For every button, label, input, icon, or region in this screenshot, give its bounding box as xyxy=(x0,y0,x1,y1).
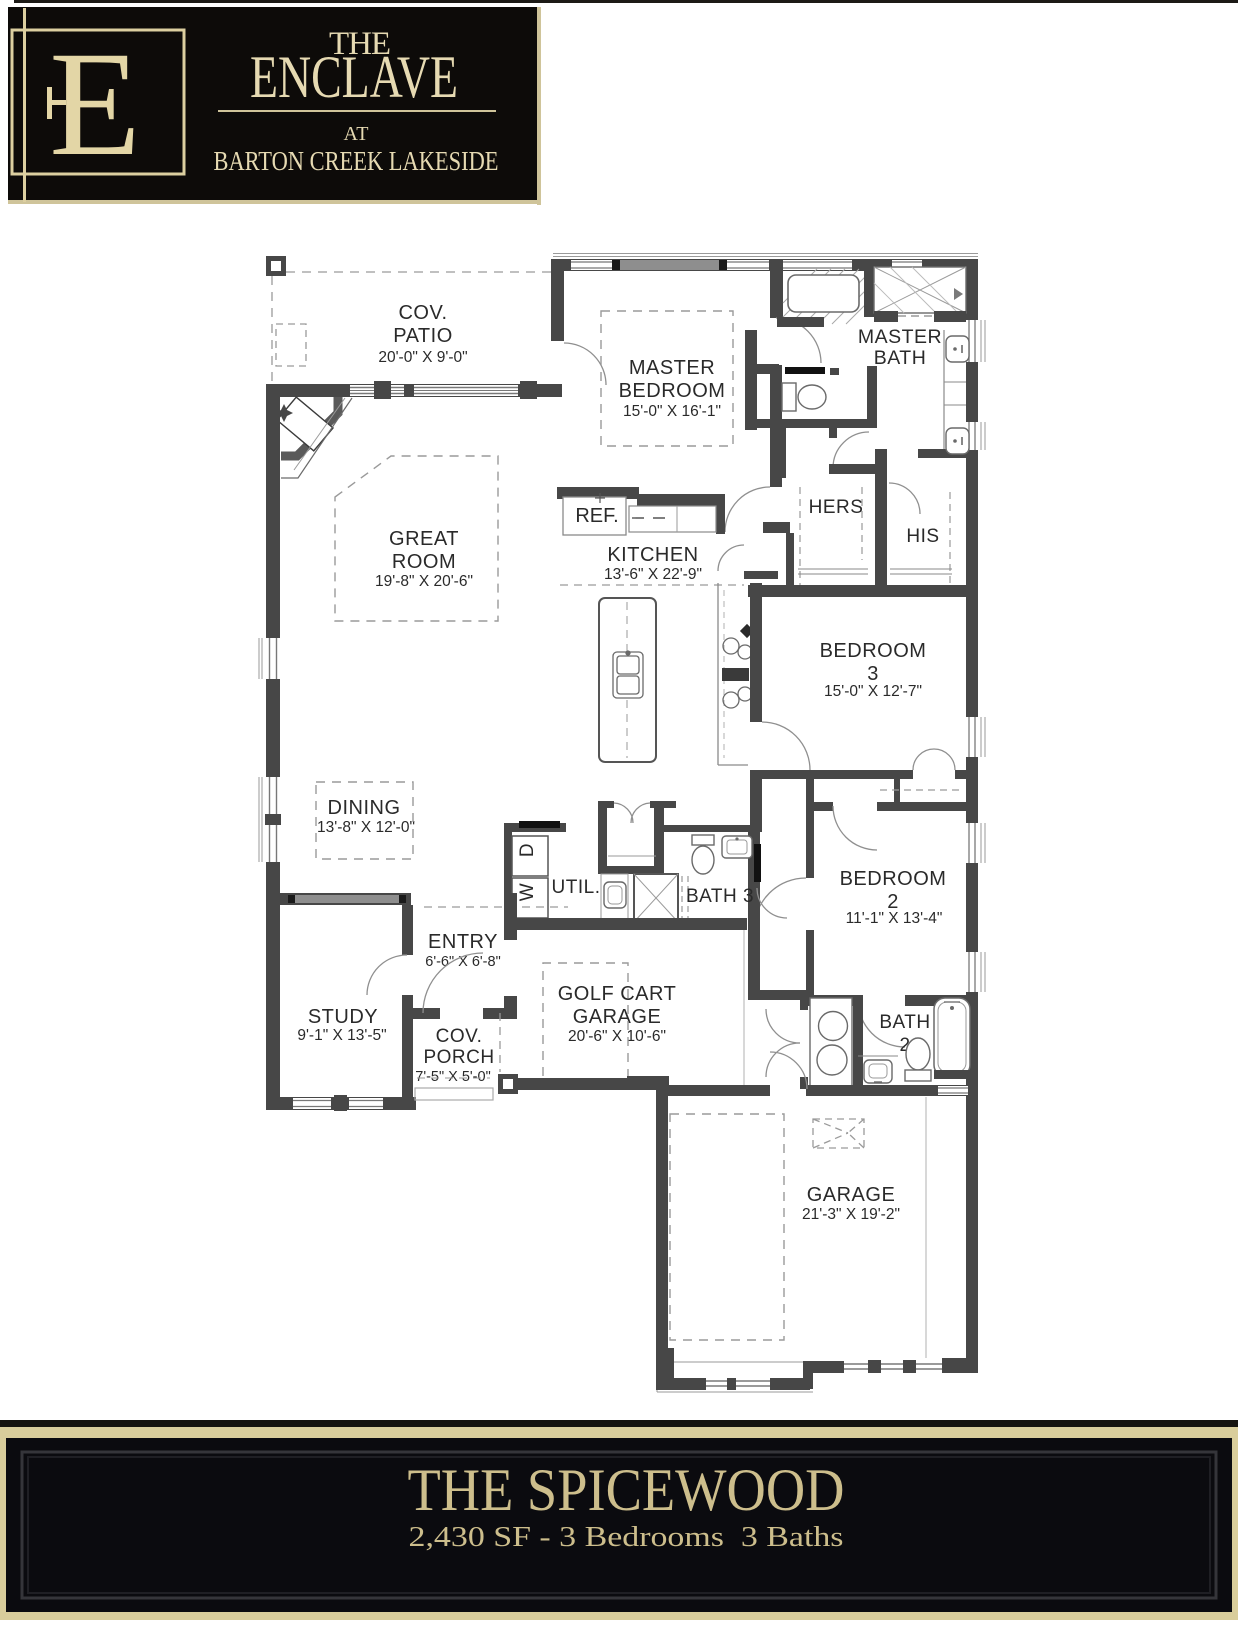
svg-text:19'-8" X 20'-6": 19'-8" X 20'-6" xyxy=(375,573,473,590)
svg-text:REF.: REF. xyxy=(575,505,618,527)
svg-text:D: D xyxy=(517,843,538,857)
svg-text:ENTRY: ENTRY xyxy=(428,931,498,953)
svg-text:MASTER: MASTER xyxy=(629,357,715,379)
svg-text:BEDROOM: BEDROOM xyxy=(840,868,947,890)
svg-text:20'-0" X 9'-0": 20'-0" X 9'-0" xyxy=(378,349,467,366)
svg-text:7'-5" X 5'-0": 7'-5" X 5'-0" xyxy=(415,1069,490,1085)
svg-text:BEDROOM: BEDROOM xyxy=(820,640,927,662)
svg-text:COV.: COV. xyxy=(398,302,447,324)
svg-text:15'-0" X 16'-1": 15'-0" X 16'-1" xyxy=(623,403,721,420)
svg-text:KITCHEN: KITCHEN xyxy=(607,544,698,566)
svg-text:13'-6" X 22'-9": 13'-6" X 22'-9" xyxy=(604,566,702,583)
svg-text:BATH: BATH xyxy=(874,347,927,369)
svg-text:BEDROOM: BEDROOM xyxy=(619,380,726,402)
svg-text:MASTER: MASTER xyxy=(858,326,942,348)
svg-text:COV.: COV. xyxy=(436,1026,483,1047)
svg-text:PORCH: PORCH xyxy=(423,1047,494,1068)
svg-text:3: 3 xyxy=(867,663,879,685)
svg-text:15'-0" X 12'-7": 15'-0" X 12'-7" xyxy=(824,683,922,700)
svg-text:AT: AT xyxy=(344,123,369,145)
svg-text:GARAGE: GARAGE xyxy=(807,1184,896,1206)
svg-text:BATH: BATH xyxy=(879,1012,930,1033)
svg-text:GOLF CART: GOLF CART xyxy=(558,983,677,1005)
svg-text:THE SPICEWOOD: THE SPICEWOOD xyxy=(408,1457,845,1523)
svg-text:HERS: HERS xyxy=(809,497,864,518)
svg-text:2,430 SF - 3 Bedrooms 3 Baths: 2,430 SF - 3 Bedrooms 3 Baths xyxy=(409,1521,844,1553)
svg-text:DINING: DINING xyxy=(328,797,401,819)
svg-text:UTIL.: UTIL. xyxy=(552,877,601,898)
svg-text:ROOM: ROOM xyxy=(392,551,456,573)
svg-text:GARAGE: GARAGE xyxy=(573,1006,662,1028)
svg-text:HIS: HIS xyxy=(906,526,939,547)
svg-text:20'-6" X 10'-6": 20'-6" X 10'-6" xyxy=(568,1028,666,1045)
svg-text:GREAT: GREAT xyxy=(389,528,459,550)
svg-text:STUDY: STUDY xyxy=(308,1006,378,1028)
svg-text:W: W xyxy=(517,883,538,901)
svg-text:11'-1" X 13'-4": 11'-1" X 13'-4" xyxy=(846,910,943,927)
svg-text:9'-1" X 13'-5": 9'-1" X 13'-5" xyxy=(297,1027,386,1044)
svg-text:BATH 3: BATH 3 xyxy=(686,886,754,907)
svg-text:ENCLAVE: ENCLAVE xyxy=(250,44,458,110)
svg-text:PATIO: PATIO xyxy=(393,325,453,347)
svg-text:BARTON CREEK LAKESIDE: BARTON CREEK LAKESIDE xyxy=(214,146,499,176)
svg-text:21'-3" X 19'-2": 21'-3" X 19'-2" xyxy=(802,1206,900,1223)
svg-text:13'-8" X 12'-0": 13'-8" X 12'-0" xyxy=(317,819,415,836)
